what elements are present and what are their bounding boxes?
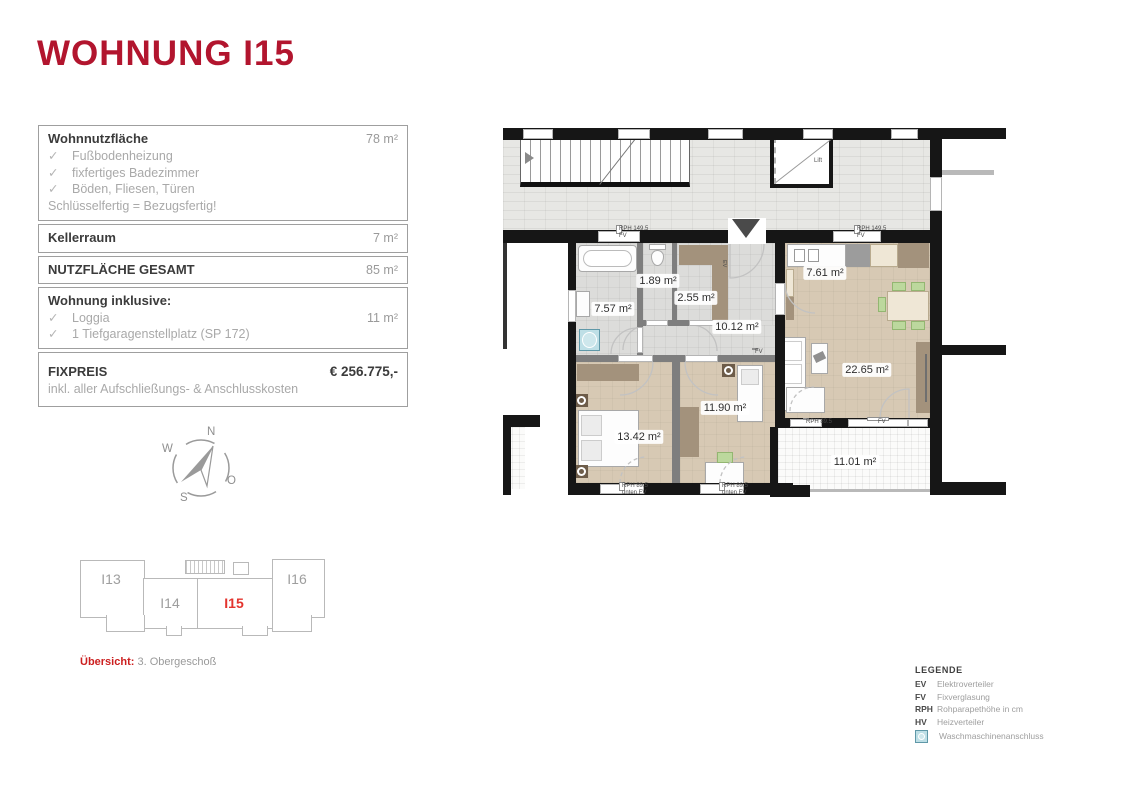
rph-value: RPH 89.5 — [722, 483, 748, 490]
legend-abbr: RPH — [915, 705, 937, 714]
loggia-wall — [770, 485, 810, 497]
washing-machine-connection-icon — [915, 730, 928, 743]
rph-value: RPH 89.5 — [806, 419, 832, 426]
door-opening — [646, 320, 668, 326]
legend-desc: Waschmaschinenanschluss — [939, 732, 1044, 741]
legend-row: HVHeizverteiler — [915, 718, 1065, 727]
compass-rose: N W S O — [163, 430, 239, 506]
overview-staircase-icon — [185, 560, 225, 574]
legend-desc: Heizverteiler — [937, 718, 984, 727]
section-wohnung-inklusive: Wohnung inklusive: ✓Loggia11 m² ✓1 Tiefg… — [38, 287, 408, 349]
legend-desc: Fixverglasung — [937, 693, 990, 702]
section-kellerraum: Kellerraum7 m² — [38, 224, 408, 253]
window — [618, 129, 650, 139]
check-item: ✓1 Tiefgaragenstellplatz (SP 172) — [48, 326, 398, 343]
compass-icon — [163, 430, 239, 506]
caption-value: 3. Obergeschoß — [137, 656, 216, 668]
unit-label-i14: I14 — [160, 595, 179, 611]
loggia-railing — [808, 489, 930, 492]
door-opening — [685, 355, 718, 362]
room-area-wc: 1.89 m² — [636, 274, 679, 288]
legend-title: LEGENDE — [915, 666, 1065, 675]
window — [930, 177, 942, 211]
rph-tag: RPH 149.5FV — [616, 225, 622, 234]
check-value: 11 m² — [367, 310, 398, 327]
check-icon: ✓ — [48, 181, 72, 198]
compass-w: W — [162, 443, 173, 455]
section-note: Schlüsselfertig = Bezugsfertig! — [48, 198, 398, 215]
fv-label: FV — [755, 349, 763, 356]
neighbor-wall — [503, 243, 507, 349]
exterior-wall — [930, 482, 1006, 495]
window — [523, 129, 553, 139]
section-note: inkl. aller Aufschließungs- & Anschlussk… — [48, 381, 398, 398]
row-value: 7 m² — [373, 230, 398, 247]
room-area-storage: 2.55 m² — [674, 291, 717, 305]
fv-tag: FV — [752, 348, 758, 350]
unit-label-i15-active: I15 — [224, 595, 243, 611]
row-label: Wohnnutzfläche — [48, 130, 148, 147]
overview-lift-icon — [233, 562, 249, 575]
unit-label-i13: I13 — [101, 571, 120, 587]
room-area-bath: 7.57 m² — [591, 302, 634, 316]
compass-n: N — [207, 426, 215, 438]
unten-fv-label: unten FV — [722, 490, 746, 497]
unten-fv-label: unten FV — [622, 490, 646, 497]
check-item: ✓Böden, Fliesen, Türen — [48, 181, 398, 198]
neighbor-wall — [503, 427, 511, 495]
apartment-wall — [568, 230, 576, 495]
check-icon: ✓ — [48, 326, 72, 343]
rph-tag: RPH 89.5unten FV — [719, 482, 725, 491]
legend-abbr: FV — [915, 693, 937, 702]
apartment-wall — [775, 243, 785, 428]
window — [803, 129, 833, 139]
section-wohnnutzflaeche: Wohnnutzfläche78 m² ✓Fußbodenheizung ✓fi… — [38, 125, 408, 221]
row-label: Kellerraum — [48, 229, 116, 246]
section-fixpreis: FIXPREIS€ 256.775,- inkl. aller Aufschli… — [38, 352, 408, 407]
row-label: Wohnung inklusive: — [48, 292, 171, 309]
legend-row: Waschmaschinenanschluss — [915, 730, 1065, 743]
check-item: ✓Loggia11 m² — [48, 310, 398, 327]
partition-wall — [575, 355, 775, 362]
unit-outline-i13 — [106, 615, 145, 632]
row-value: 78 m² — [366, 131, 398, 148]
unit-outline-i16 — [272, 615, 312, 632]
wall-line — [942, 170, 994, 175]
room-area-kitchen: 7.61 m² — [803, 266, 846, 280]
loggia-door-opening — [908, 419, 928, 427]
legend-desc: Rohparapethöhe in cm — [937, 705, 1023, 714]
unit-outline-i16 — [272, 559, 325, 618]
check-label: Fußbodenheizung — [72, 148, 173, 165]
check-label: Böden, Fliesen, Türen — [72, 181, 195, 198]
rph-tag: RPH 89.5 — [803, 418, 809, 420]
row-value: 85 m² — [366, 262, 398, 279]
fv-label: FV — [619, 233, 627, 240]
partition-wall — [672, 362, 680, 483]
legend-abbr: HV — [915, 718, 937, 727]
check-label: fixfertiges Badezimmer — [72, 165, 199, 182]
legend-desc: Elektroverteiler — [937, 680, 994, 689]
door-opening — [637, 327, 643, 353]
door-opening — [775, 283, 785, 315]
legend-row: FVFixverglasung — [915, 693, 1065, 702]
check-item: ✓fixfertiges Badezimmer — [48, 165, 398, 182]
unit-outline-i15 — [242, 626, 268, 636]
fv-tag: FV — [867, 417, 889, 421]
unit-outline-i14 — [166, 626, 182, 636]
rph-value: RPH 149.5 — [857, 226, 886, 233]
rph-value: RPH 89.5 — [622, 483, 648, 490]
exterior-wall — [940, 345, 1006, 355]
exterior-wall — [940, 128, 1006, 139]
check-label: Loggia — [72, 310, 110, 327]
row-label: NUTZFLÄCHE GESAMT — [48, 261, 195, 278]
unit-outline-i13 — [80, 560, 145, 618]
room-area-living: 22.65 m² — [842, 363, 891, 377]
compass-s: S — [180, 492, 188, 504]
check-label: 1 Tiefgaragenstellplatz (SP 172) — [72, 326, 250, 343]
ev-label: EV — [721, 260, 727, 267]
rph-value: RPH 149.5 — [619, 226, 648, 233]
overview-caption: Übersicht: 3. Obergeschoß — [80, 656, 216, 668]
unit-label-i16: I16 — [287, 571, 306, 587]
legend-abbr: EV — [915, 680, 937, 689]
window — [708, 129, 743, 139]
check-icon: ✓ — [48, 310, 72, 327]
room-area-loggia: 11.01 m² — [831, 455, 880, 469]
room-area-bedroom1: 13.42 m² — [614, 430, 663, 444]
check-icon: ✓ — [48, 165, 72, 182]
row-label: FIXPREIS — [48, 363, 107, 380]
compass-o: O — [227, 475, 236, 487]
room-area-bedroom2: 11.90 m² — [701, 401, 750, 415]
room-area-hall: 10.12 m² — [712, 320, 761, 334]
legend: LEGENDE EVElektroverteiler FVFixverglasu… — [915, 666, 1065, 747]
page-title: WOHNUNG I15 — [37, 34, 295, 74]
check-icon: ✓ — [48, 148, 72, 165]
section-nutzflaeche-gesamt: NUTZFLÄCHE GESAMT85 m² — [38, 256, 408, 285]
neighbor-wall — [503, 415, 540, 427]
info-table: Wohnnutzfläche78 m² ✓Fußbodenheizung ✓fi… — [38, 125, 408, 410]
window — [568, 290, 576, 322]
fv-label: FV — [878, 419, 886, 426]
entrance-arrow-icon — [732, 219, 760, 238]
door-opening — [618, 355, 653, 362]
window — [891, 129, 918, 139]
fv-label: FV — [857, 233, 865, 240]
rph-tag: RPH 89.5unten FV — [619, 482, 625, 491]
price-value: € 256.775,- — [330, 363, 398, 381]
caption-label: Übersicht: — [80, 656, 134, 668]
floor-plan: Lift — [503, 115, 1008, 507]
legend-row: EVElektroverteiler — [915, 680, 1065, 689]
rph-tag: RPH 149.5FV — [854, 225, 860, 234]
check-item: ✓Fußbodenheizung — [48, 148, 398, 165]
legend-row: RPHRohparapethöhe in cm — [915, 705, 1065, 714]
